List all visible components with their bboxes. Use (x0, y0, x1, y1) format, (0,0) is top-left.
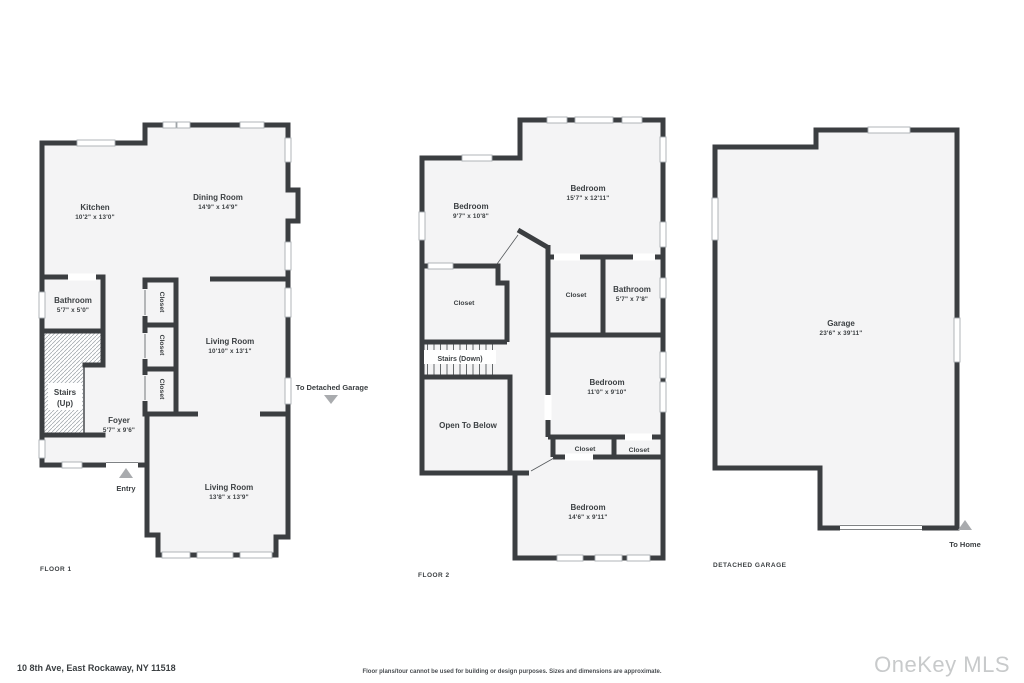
floor2-caption: FLOOR 2 (418, 572, 450, 579)
living-room-lower-dims: 13'8" x 13'9" (209, 494, 249, 501)
closet3-label: Closet (158, 379, 165, 401)
closet-row2-label: Closet (629, 447, 651, 454)
bathroom2-label: Bathroom (613, 285, 651, 294)
closet1-label: Closet (158, 292, 165, 314)
bathroom2-dims: 5'7" x 7'8" (616, 296, 648, 303)
bedroom-left-label: Bedroom (453, 202, 488, 211)
open-to-below-label: Open To Below (439, 421, 497, 430)
to-garage-label: To Detached Garage (296, 383, 368, 392)
closet-row1-label: Closet (575, 446, 597, 453)
closet-left-label: Closet (454, 300, 476, 307)
living-room-upper-label: Living Room (206, 337, 254, 346)
bedroom-left-dims: 9'7" x 10'8" (453, 213, 489, 220)
floor1-plan: Kitchen 10'2" x 13'0" Dining Room 14'9" … (39, 122, 368, 573)
entry-arrow-icon (119, 468, 133, 478)
to-garage-opening (285, 378, 291, 404)
bathroom1-label: Bathroom (54, 296, 92, 305)
stairs-up-label: Stairs (54, 388, 77, 397)
onekey-mls-watermark: OneKey MLS (874, 652, 1010, 678)
bedroom-bottom-label: Bedroom (570, 503, 605, 512)
dining-room-label: Dining Room (193, 193, 243, 202)
entry-label: Entry (116, 484, 136, 493)
garage-plan: Garage 23'6" x 39'11" To Home DETACHED G… (712, 127, 981, 569)
kitchen-label: Kitchen (80, 203, 109, 212)
foyer-label: Foyer (108, 416, 130, 425)
stairs-up-hatch (45, 334, 101, 363)
foyer-dims: 5'7" x 9'6" (103, 427, 135, 434)
bedroom-right-label: Bedroom (589, 378, 624, 387)
floor2-plan: Bedroom 9'7" x 10'8" Bedroom 15'7" x 12'… (418, 117, 666, 579)
kitchen-dims: 10'2" x 13'0" (75, 214, 115, 221)
garage-dims: 23'6" x 39'11" (820, 330, 863, 337)
garage-label: Garage (827, 319, 855, 328)
living-room-lower-label: Living Room (205, 483, 253, 492)
bedroom-top-dims: 15'7" x 12'11" (567, 195, 610, 202)
dining-room-dims: 14'9" x 14'9" (198, 204, 238, 211)
closet2-label: Closet (158, 335, 165, 357)
stairs-up-label2: (Up) (57, 399, 73, 408)
disclaimer-text: Floor plans/tour cannot be used for buil… (0, 669, 1024, 675)
bedroom-top-label: Bedroom (570, 184, 605, 193)
living-room-upper-dims: 10'10" x 13'1" (208, 348, 251, 355)
to-garage-arrow-icon (324, 395, 338, 404)
garage-caption: DETACHED GARAGE (713, 562, 787, 569)
bedroom-bottom-dims: 14'6" x 9'11" (568, 514, 607, 521)
closet-middle-label: Closet (566, 292, 588, 299)
to-home-label: To Home (949, 540, 981, 549)
floor-plan-canvas: Kitchen 10'2" x 13'0" Dining Room 14'9" … (0, 0, 1024, 683)
floor1-caption: FLOOR 1 (40, 566, 72, 573)
bathroom1-dims: 5'7" x 5'0" (57, 307, 89, 314)
bedroom-right-dims: 11'0" x 9'10" (587, 389, 626, 396)
floor-plan-page: Kitchen 10'2" x 13'0" Dining Room 14'9" … (0, 0, 1024, 683)
stairs-down-label: Stairs (Down) (437, 356, 482, 363)
to-home-arrow-icon (958, 520, 972, 530)
